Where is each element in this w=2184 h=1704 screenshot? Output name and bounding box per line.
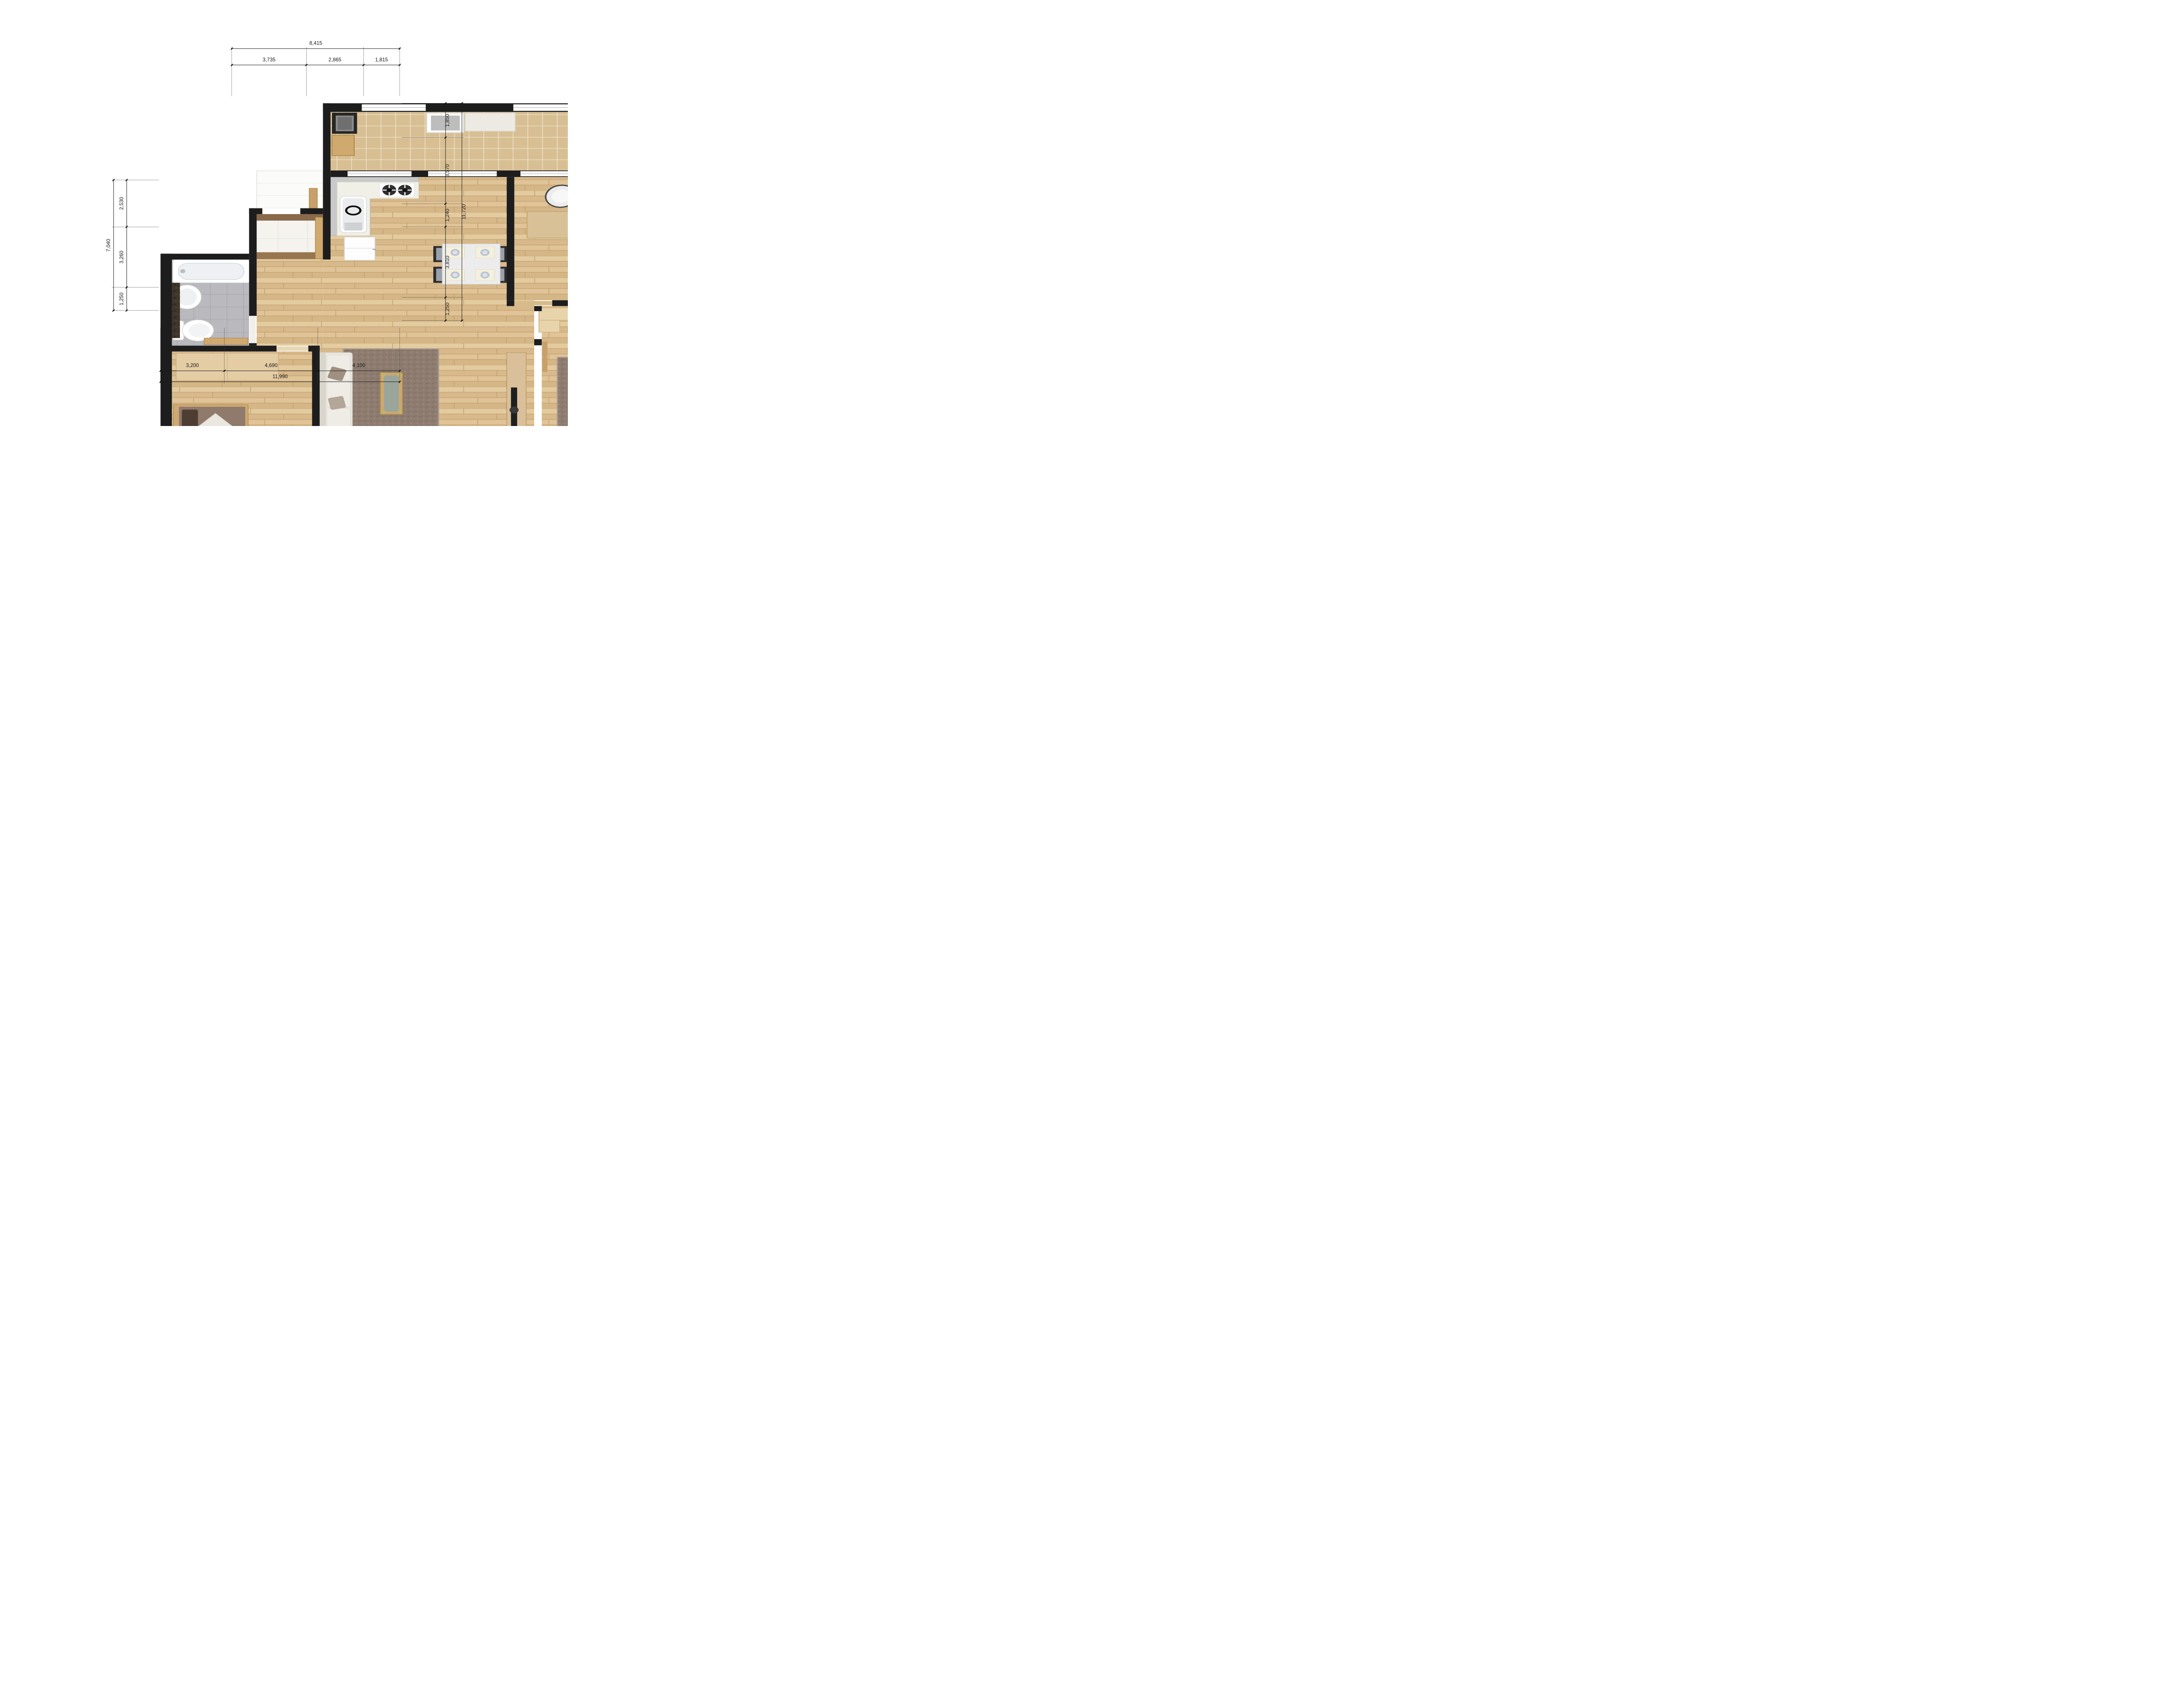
dim-left-seg2: 3,260 xyxy=(119,250,124,263)
dim-left-seg3: 1,250 xyxy=(119,292,124,305)
dim-right-seg4: 3,810 xyxy=(445,256,450,269)
shoe-cabinet xyxy=(315,217,323,259)
gas-hob xyxy=(379,183,414,197)
dining-set xyxy=(433,244,507,284)
floor-plan-svg xyxy=(161,103,568,426)
dim-left-seg1: 2,530 xyxy=(119,197,124,210)
dim-left-total: 7,040 xyxy=(106,239,111,252)
granite-strip xyxy=(172,283,180,338)
utility-shelf xyxy=(332,135,354,156)
bathroom1-door-opening xyxy=(250,316,256,343)
master-rug xyxy=(557,357,568,426)
entry-marble-threshold xyxy=(257,214,323,221)
entry-marble-threshold-2 xyxy=(257,252,323,259)
dim-right-seg1: 1,850 xyxy=(445,114,450,127)
bedroom2-door-threshold xyxy=(514,301,552,305)
dim-top-seg2: 2,865 xyxy=(328,57,342,63)
bedroom1-door-threshold xyxy=(276,346,308,351)
dim-left-chain: 2,530 3,260 1,250 7,040 xyxy=(106,179,159,312)
dim-top-seg1: 3,735 xyxy=(263,57,276,63)
utility-counter xyxy=(465,113,515,132)
dim-right-seg2: 3,570 xyxy=(445,164,450,177)
floor-plan-canvas: 8,415 3,735 2,865 1,815 3,200 4,690 4,10… xyxy=(0,0,568,426)
front-door-leaf xyxy=(309,188,317,208)
dim-right-total: 11,720 xyxy=(461,204,467,220)
dim-bottom-seg2: 4,690 xyxy=(265,363,278,368)
dim-right-seg3: 1,240 xyxy=(445,208,450,222)
bath-shelf xyxy=(204,338,248,345)
dim-bottom-total: 11,990 xyxy=(273,374,288,380)
dim-top-total: 8,415 xyxy=(309,41,322,46)
kitchen-sink xyxy=(340,196,366,232)
dim-bottom-seg3: 4,100 xyxy=(352,363,366,368)
single-bed xyxy=(173,405,248,426)
bathtub xyxy=(173,260,250,283)
refrigerator xyxy=(344,237,376,260)
tv-console xyxy=(507,353,526,426)
dim-bottom-seg1: 3,200 xyxy=(186,363,199,368)
hall-left-floor xyxy=(257,259,323,346)
coffee-table xyxy=(380,373,403,415)
entry-floor xyxy=(257,221,323,252)
ac-unit xyxy=(332,113,357,134)
dim-top-seg3: 1,815 xyxy=(375,57,388,63)
floor-plan-page: 8,415 3,735 2,865 1,815 3,200 4,690 4,10… xyxy=(0,0,568,426)
dim-right-seg5: 1,250 xyxy=(445,302,450,315)
dim-top-chain: 8,415 3,735 2,865 1,815 xyxy=(231,41,401,97)
desk xyxy=(527,211,568,238)
front-door-opening xyxy=(263,208,301,214)
sofa xyxy=(315,353,352,426)
master-door-leaf xyxy=(542,342,547,372)
